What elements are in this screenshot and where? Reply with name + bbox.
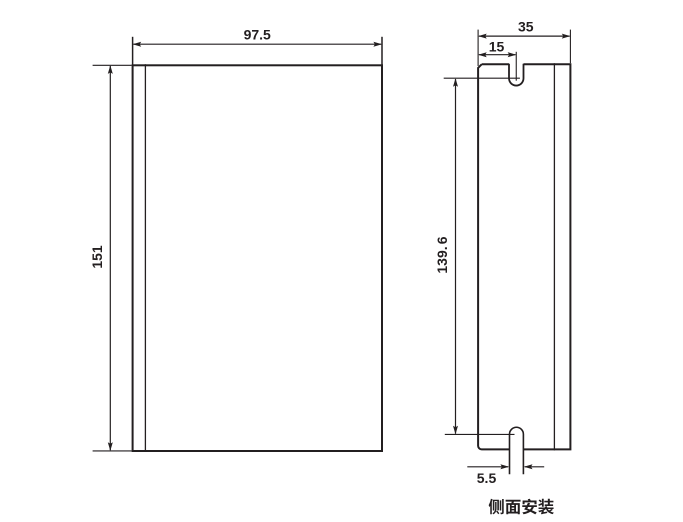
svg-text:5.5: 5.5 [477, 470, 497, 486]
svg-text:35: 35 [518, 19, 534, 35]
svg-text:139.6: 139.6 [434, 236, 450, 273]
svg-text:151: 151 [89, 245, 105, 269]
svg-text:97.5: 97.5 [244, 27, 271, 43]
svg-text:15: 15 [489, 38, 505, 54]
